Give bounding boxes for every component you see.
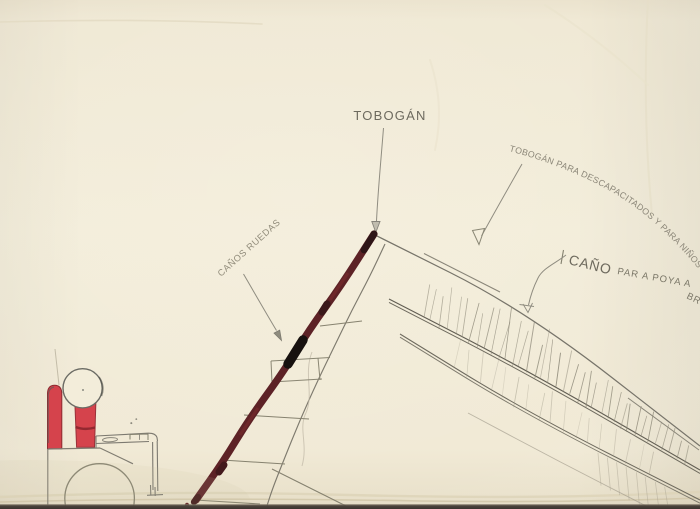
svg-text:TOBOGÁN: TOBOGÁN (353, 108, 426, 123)
